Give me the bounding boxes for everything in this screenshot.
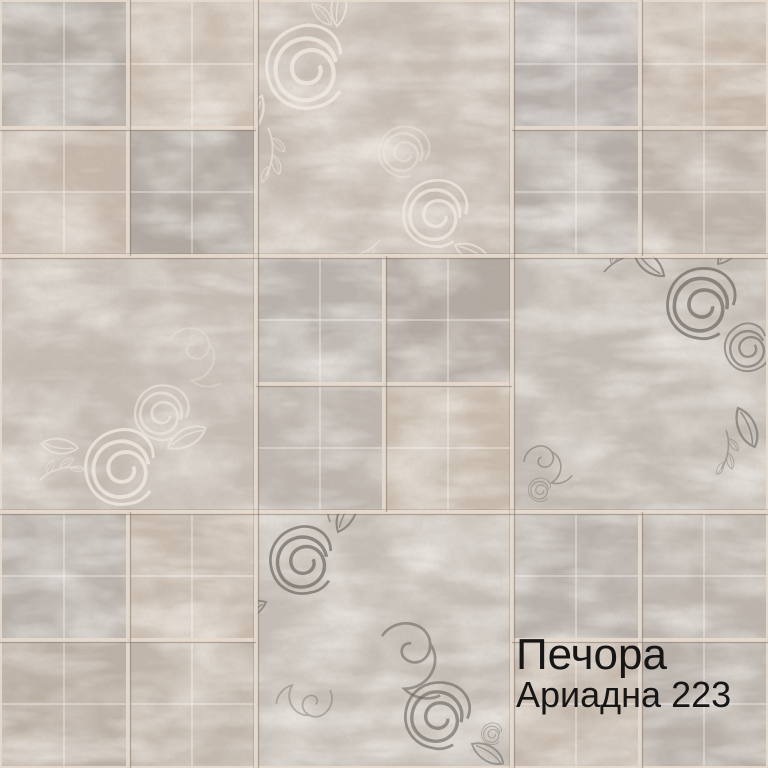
tile-pattern-svg: Печора Ариадна 223 xyxy=(0,0,768,768)
product-image: Печора Ариадна 223 xyxy=(0,0,768,768)
product-variant-text: Ариадна 223 xyxy=(516,674,731,715)
product-name-text: Печора xyxy=(516,630,668,679)
